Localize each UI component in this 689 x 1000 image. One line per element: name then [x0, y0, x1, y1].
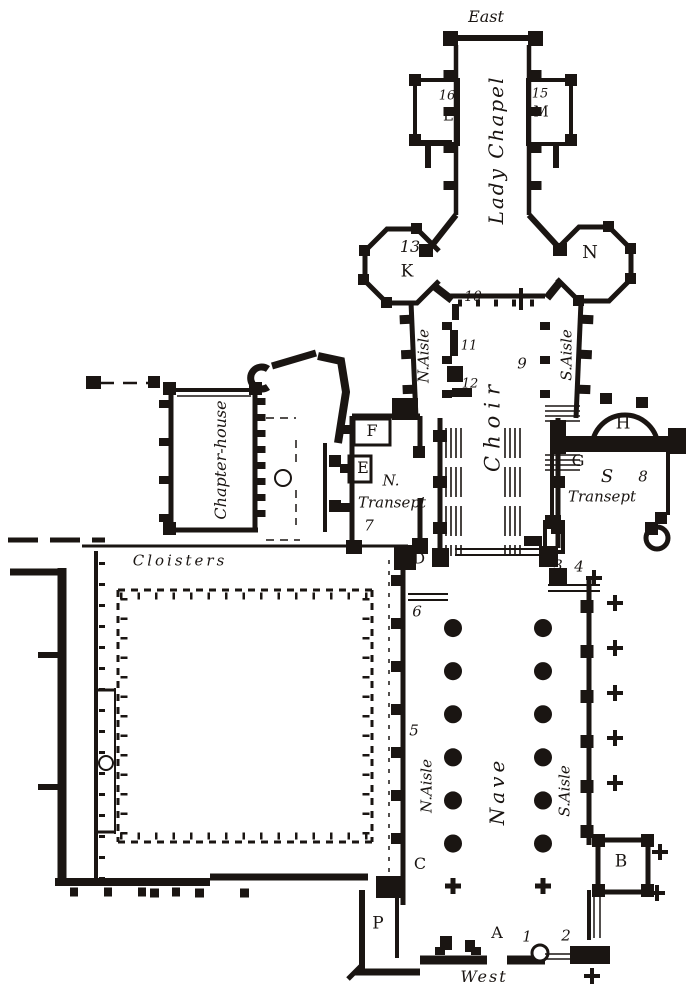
label-G: G	[572, 453, 585, 469]
label-10: 10	[464, 290, 482, 304]
label-s-aisle-east: S.Aisle	[560, 329, 575, 381]
label-west: West	[460, 969, 507, 985]
west-front-walls	[420, 936, 610, 984]
label-n-aisle-east: N.Aisle	[417, 329, 432, 383]
label-lady-chapel: Lady Chapel	[486, 76, 506, 225]
label-L: L	[443, 109, 453, 124]
label-n-transept: Transept	[358, 496, 426, 511]
label-16: 16	[439, 90, 456, 103]
chapter-house-walls	[86, 376, 262, 535]
label-K: K	[401, 264, 414, 281]
label-nave: Nave	[487, 757, 507, 826]
label-F: F	[366, 423, 377, 439]
south-porch-walls	[348, 876, 420, 979]
label-H: H	[616, 416, 631, 433]
label-7: 7	[364, 519, 374, 534]
label-s-aisle-nave: S.Aisle	[558, 765, 573, 817]
label-12: 12	[462, 378, 479, 391]
south-buttresses	[607, 595, 623, 791]
sw-tower-walls	[592, 834, 668, 938]
octagon-chapel-N	[547, 221, 636, 306]
label-11: 11	[461, 340, 478, 353]
label-s-transept: Transept	[568, 490, 636, 505]
label-east: East	[468, 9, 504, 25]
label-choir: Choir	[483, 378, 504, 472]
label-s-transept-s: S	[601, 468, 613, 486]
label-2: 2	[561, 929, 571, 944]
label-E: E	[357, 460, 369, 476]
cloister-walls	[82, 546, 416, 886]
label-9: 9	[517, 357, 527, 372]
label-13: 13	[400, 239, 420, 255]
label-N: N	[582, 244, 598, 262]
label-C: C	[414, 856, 426, 872]
label-4: 4	[574, 560, 584, 575]
label-B: B	[615, 854, 628, 871]
label-D: D	[413, 552, 425, 567]
label-chapter-house: Chapter-house	[213, 400, 229, 519]
floor-plan: East Lady Chapel 16 L 15 M 13 K N 10 N.A…	[0, 0, 689, 1000]
label-M: M	[533, 105, 548, 120]
label-A: A	[491, 925, 503, 941]
label-8: 8	[638, 470, 648, 485]
label-3: 3	[553, 559, 563, 574]
label-P: P	[372, 916, 383, 933]
label-6: 6	[412, 605, 422, 620]
label-n-aisle-nave: N.Aisle	[420, 759, 435, 813]
label-cloisters: Cloisters	[133, 554, 228, 569]
label-5: 5	[409, 724, 419, 739]
label-1: 1	[522, 930, 532, 945]
nave-west-piers	[445, 878, 551, 894]
label-n-transept-n: N.	[383, 474, 400, 489]
label-15: 15	[532, 88, 549, 101]
